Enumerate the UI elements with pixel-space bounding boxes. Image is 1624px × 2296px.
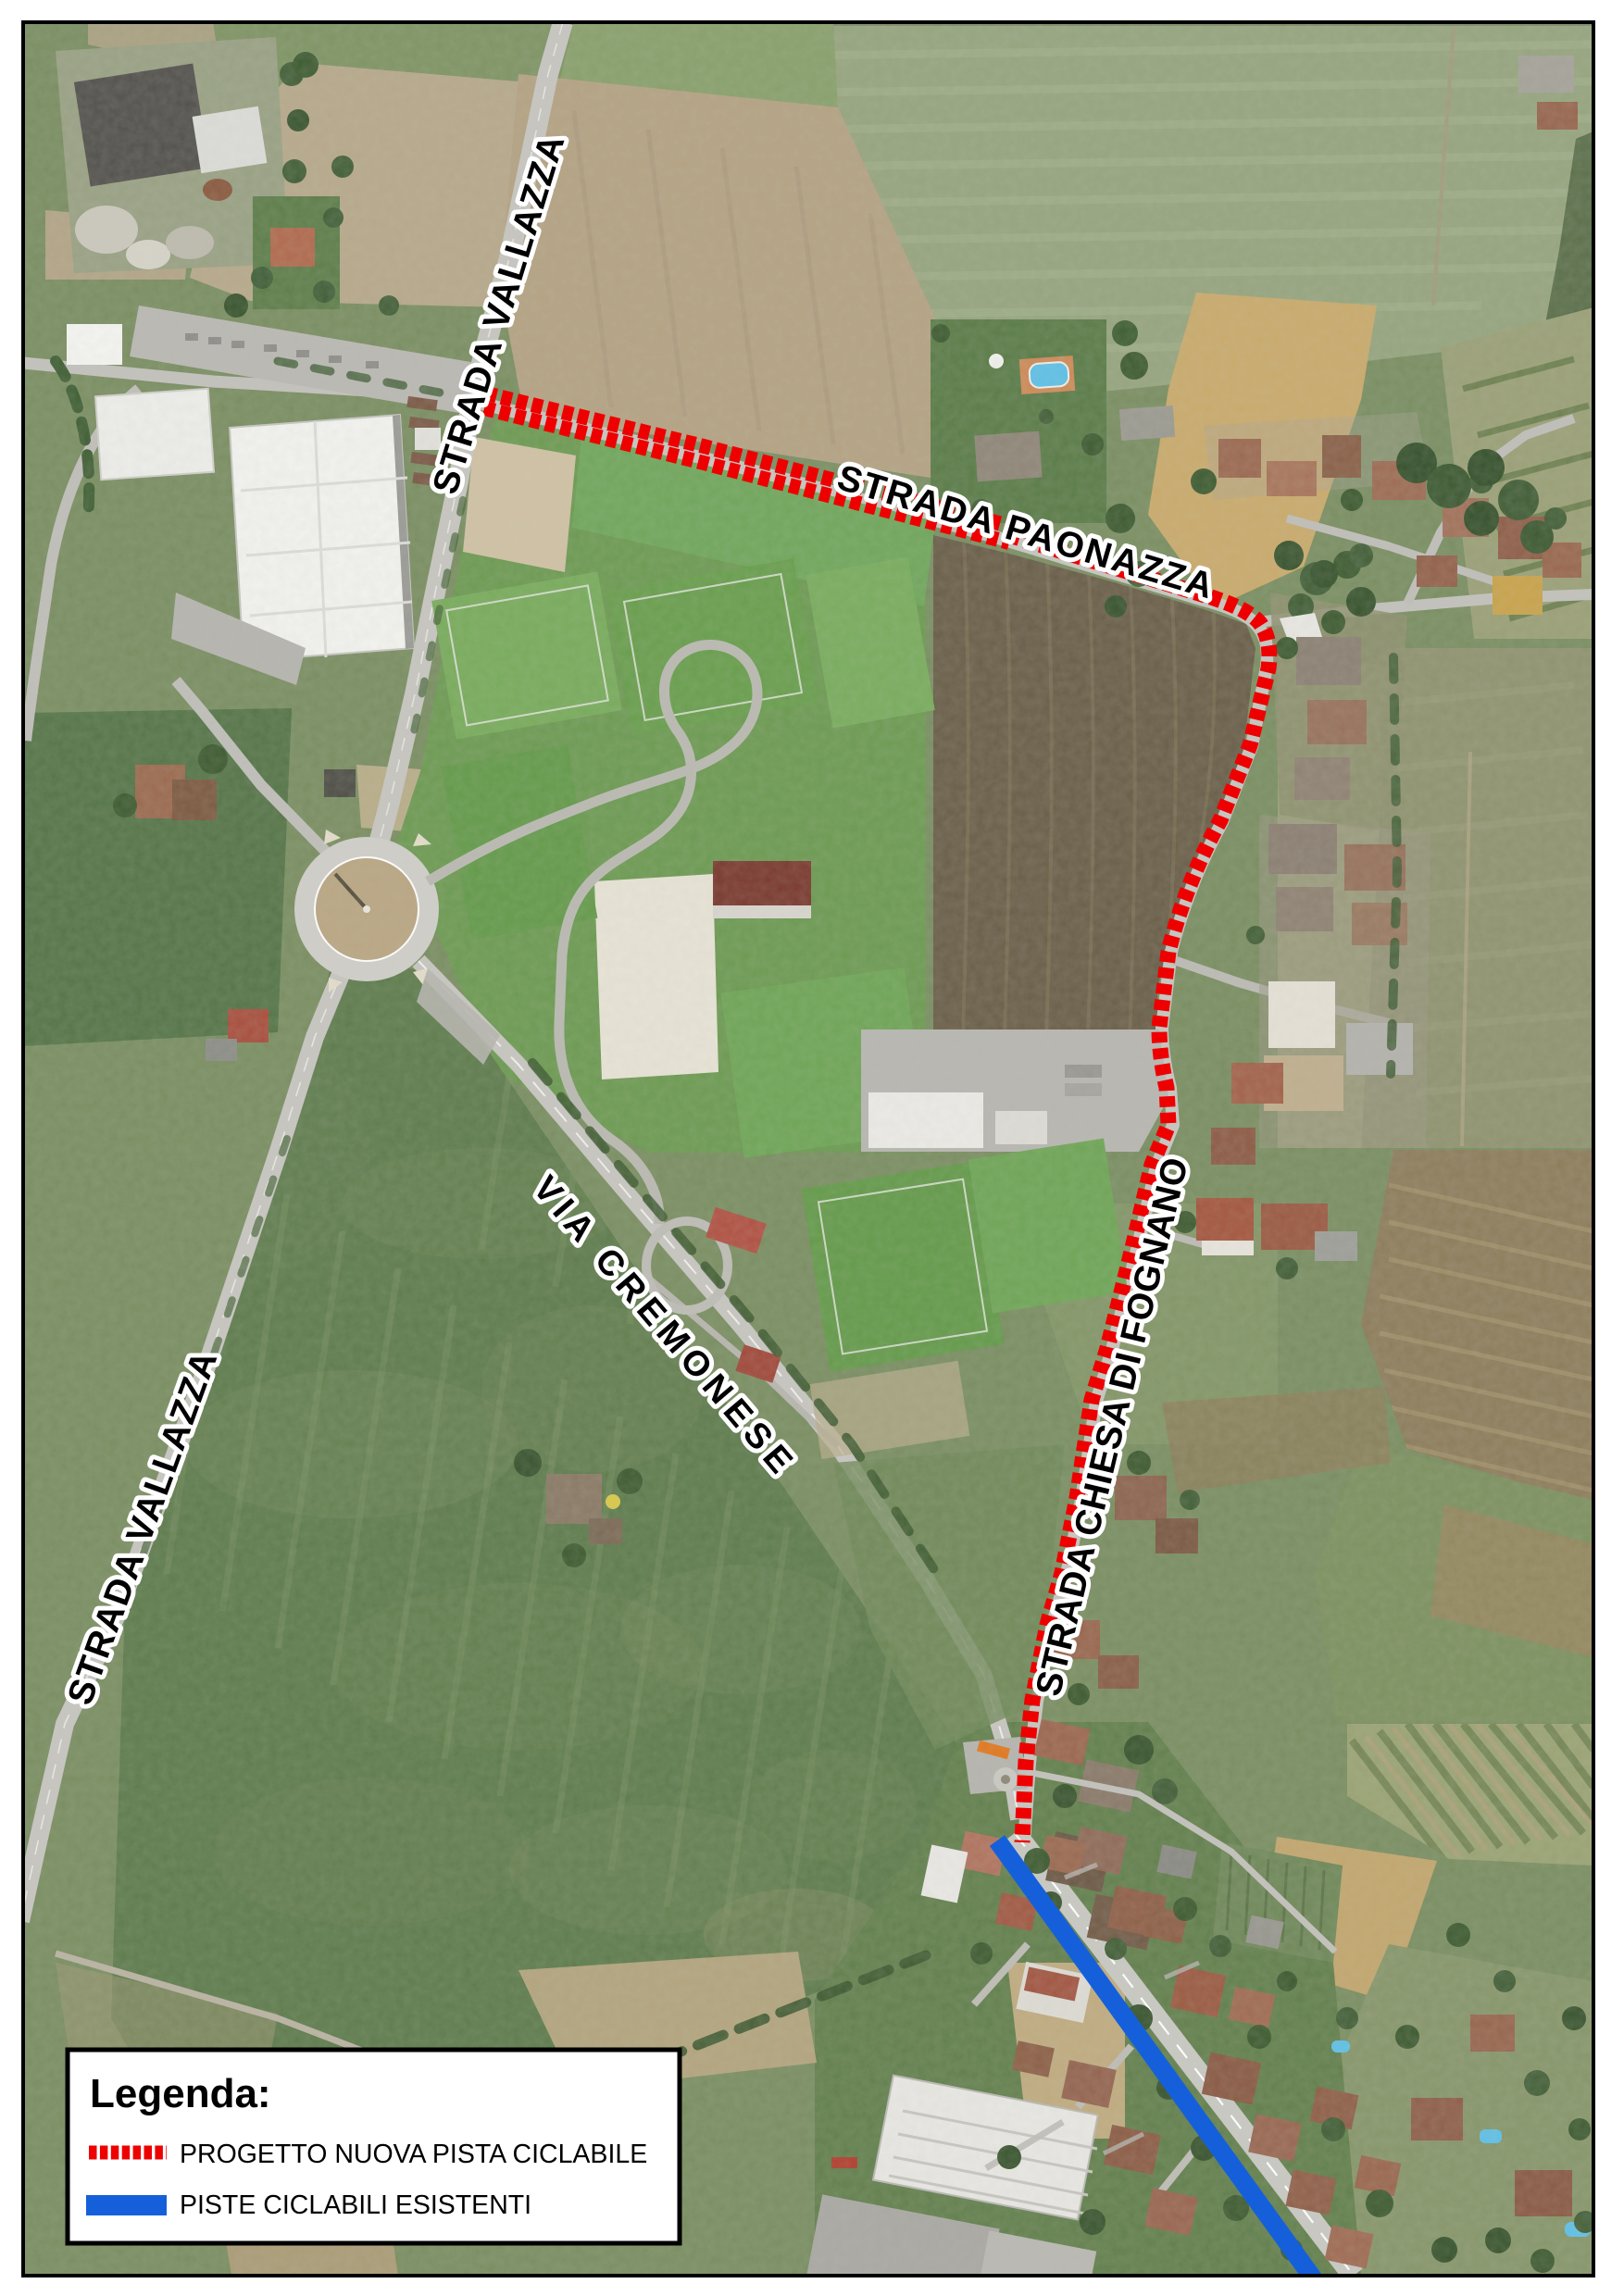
svg-text:Legenda:: Legenda:: [90, 2071, 271, 2116]
svg-text:PISTE CICLABILI ESISTENTI: PISTE CICLABILI ESISTENTI: [180, 2190, 531, 2220]
svg-text:PROGETTO NUOVA PISTA CICLABILE: PROGETTO NUOVA PISTA CICLABILE: [180, 2140, 647, 2169]
